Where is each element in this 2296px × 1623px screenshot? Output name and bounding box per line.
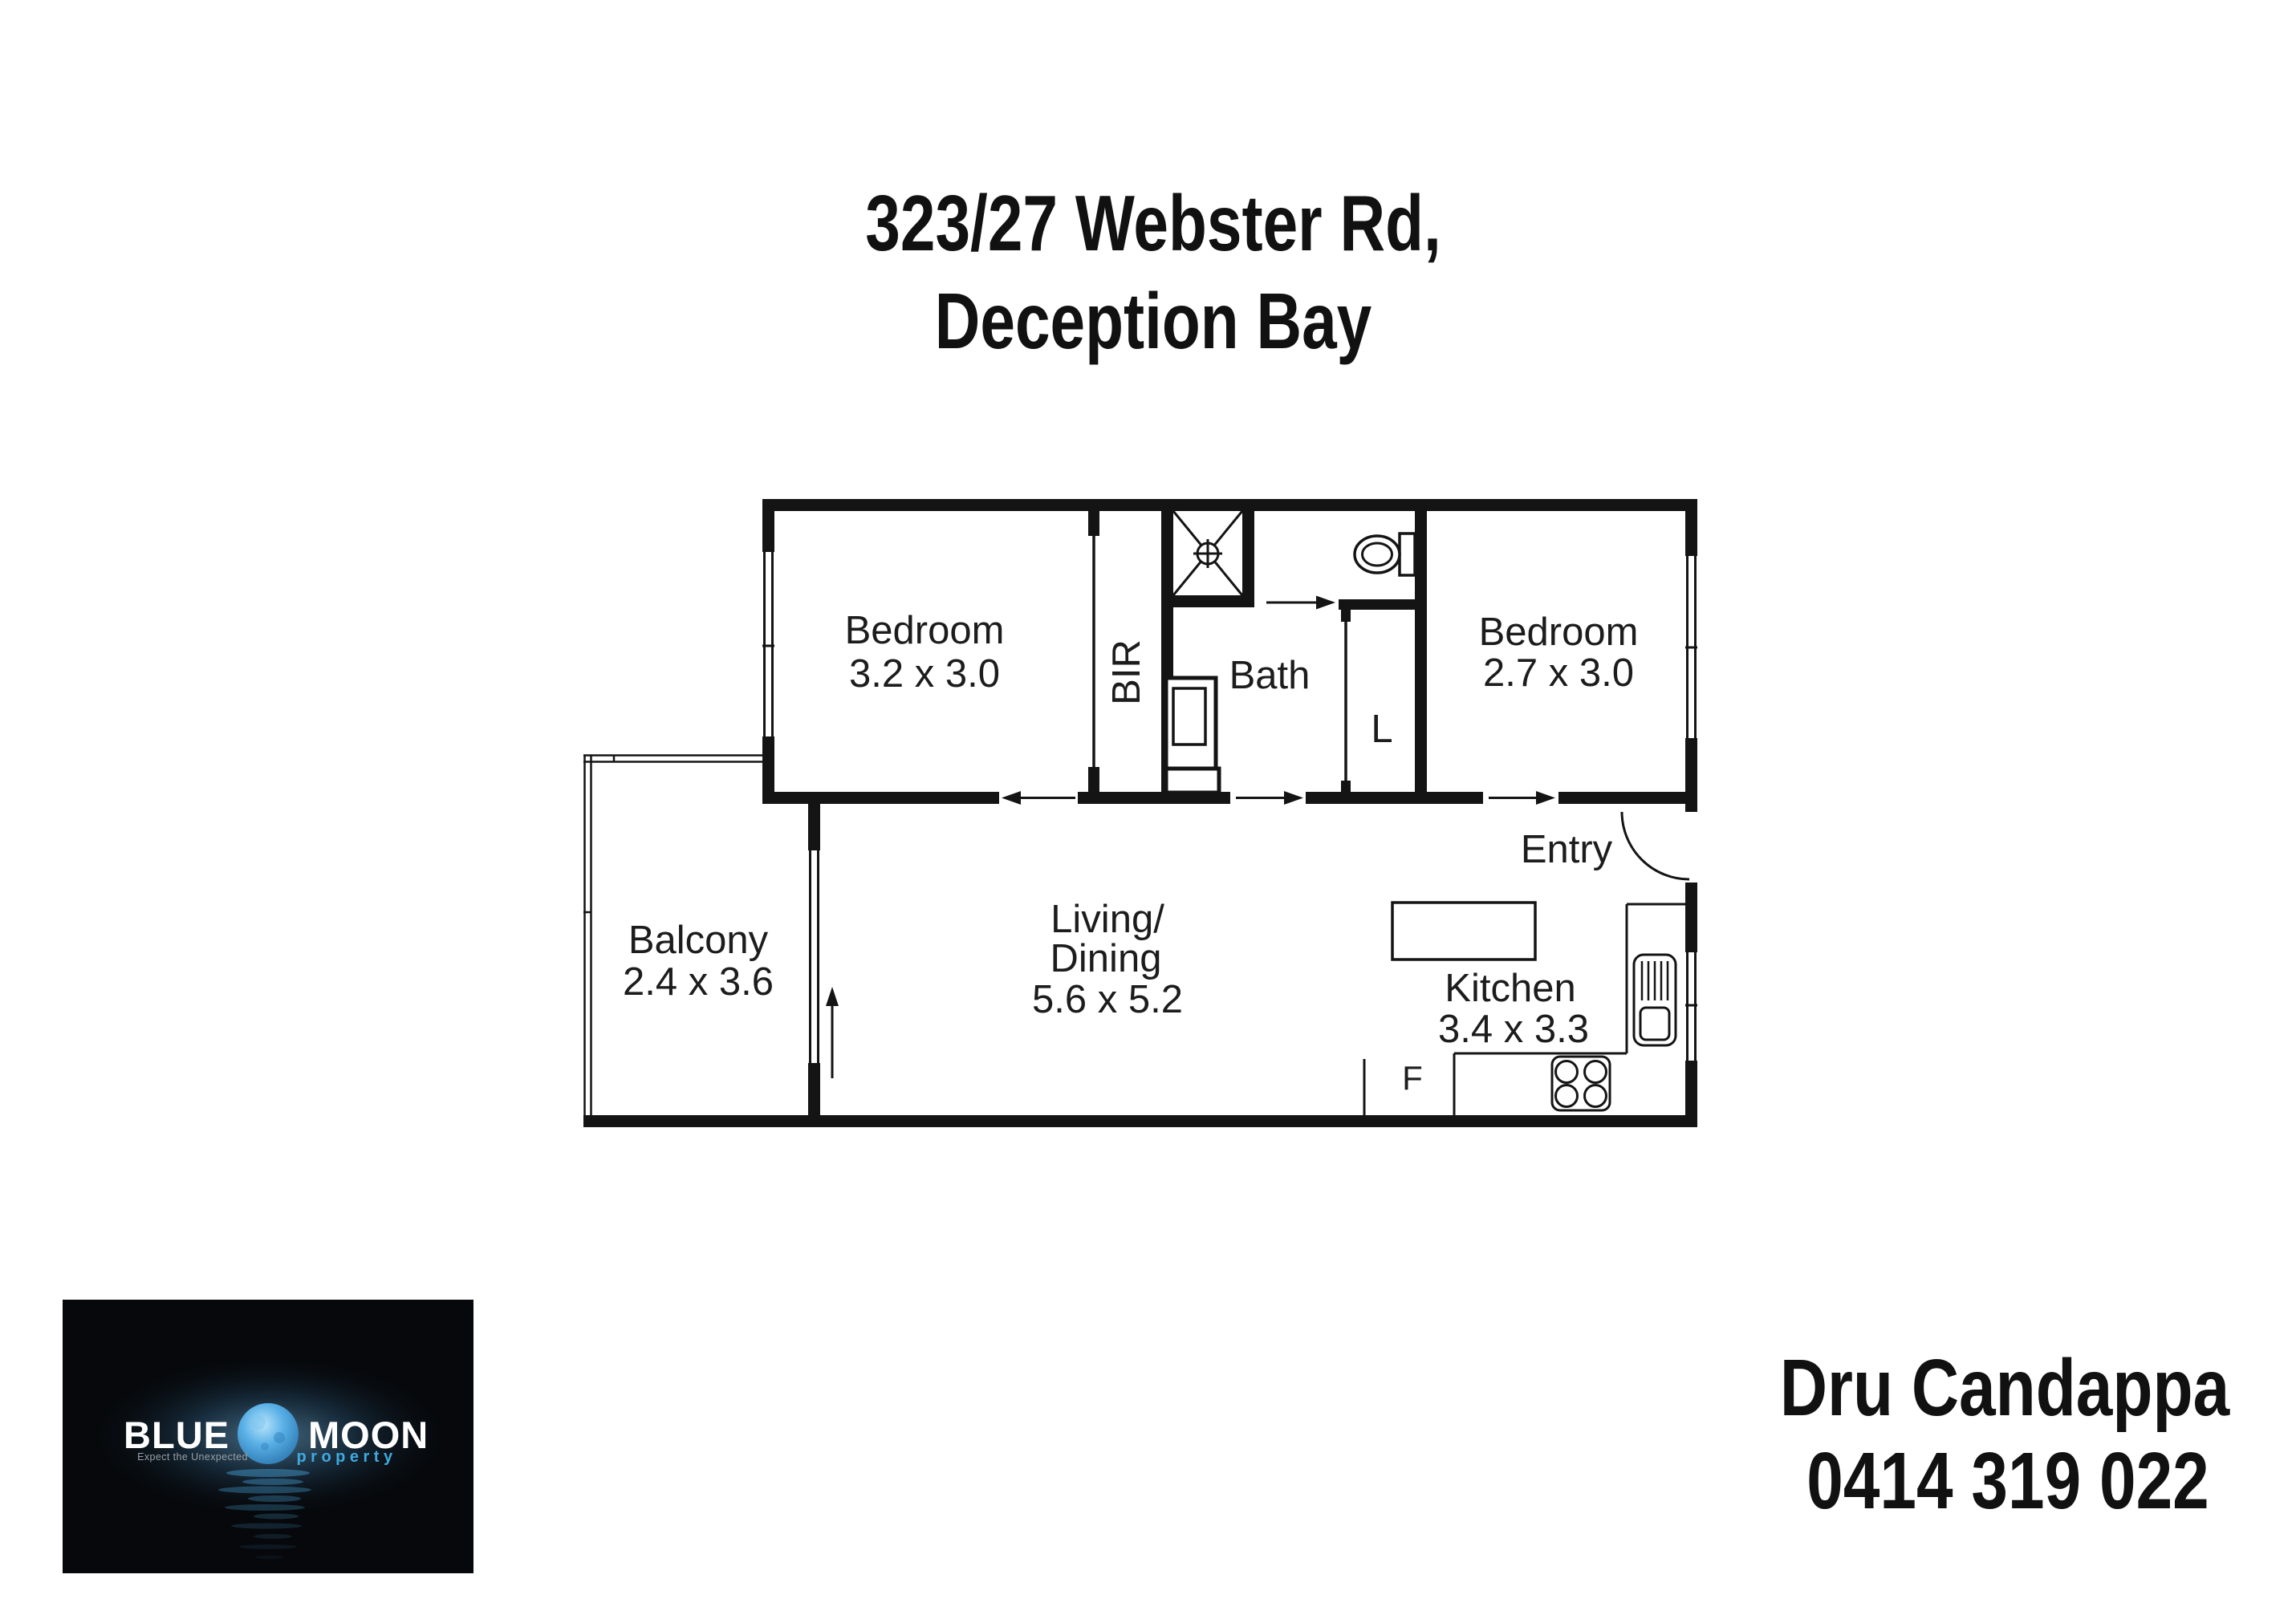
page-title: 323/27 Webster Rd, Deception Bay: [865, 180, 1441, 365]
kitchen-island-bench: [1392, 903, 1535, 960]
blue-moon-logo: BLUE MOON Expect the Unexpected property: [63, 1300, 473, 1573]
wall-balcony-divider-bottom: [808, 1063, 820, 1115]
room-labels: Bedroom 3.2 x 3.0 Bedroom 2.7 x 3.0 Bath…: [623, 609, 1638, 1097]
bedroom1-dims-label: 3.2 x 3.0: [849, 652, 1000, 696]
wall-shower-bottom: [1173, 595, 1254, 607]
title-line-1: 323/27 Webster Rd,: [865, 180, 1441, 267]
wall-balcony-divider-top: [808, 802, 820, 850]
window-bedroom-2: [1685, 556, 1697, 738]
door-arrow-balcony-slider: [826, 987, 839, 1078]
bath-label: Bath: [1229, 654, 1311, 697]
wall-linen-top: [1339, 599, 1418, 610]
bir-label: BIR: [1105, 639, 1148, 705]
logo-brand-blue: BLUE: [124, 1414, 230, 1456]
linen-label: L: [1371, 708, 1392, 751]
shower-fixture: [1173, 511, 1242, 595]
bedroom1-name-label: Bedroom: [845, 609, 1005, 652]
window-bedroom-1: [762, 552, 774, 736]
floorplan-svg: 323/27 Webster Rd, Deception Bay: [0, 0, 2296, 1623]
living-line2-label: Dining: [1050, 937, 1162, 980]
jamb-linen-top: [1341, 610, 1351, 622]
door-arrow-wc: [1266, 596, 1335, 610]
wall-shower-right: [1242, 511, 1254, 607]
wall-top: [762, 499, 1697, 511]
wall-midrow-c: [1306, 792, 1483, 804]
balcony-dims-label: 2.4 x 3.6: [623, 960, 774, 1004]
window-kitchen: [1685, 952, 1697, 1061]
wall-bath-right: [1415, 511, 1427, 804]
fridge-label: F: [1402, 1059, 1423, 1097]
kitchen-name-label: Kitchen: [1445, 967, 1575, 1010]
door-arrow-bath: [1236, 791, 1303, 805]
wall-midrow-d: [1558, 792, 1697, 804]
living-line1-label: Living/: [1050, 898, 1164, 941]
toilet-fixture: [1355, 534, 1415, 575]
agent-phone: 0414 319 022: [1806, 1436, 2209, 1526]
balcony-name-label: Balcony: [628, 919, 769, 962]
bedroom2-name-label: Bedroom: [1479, 611, 1639, 654]
stove-fixture: [1552, 1057, 1610, 1110]
jamb-bir-bottom: [1088, 767, 1099, 792]
wall-left-upper: [762, 499, 774, 552]
logo-tagline: Expect the Unexpected: [137, 1451, 248, 1463]
door-arrow-bedroom-2: [1489, 791, 1555, 805]
wall-midrow-a: [762, 792, 999, 804]
sink-fixture: [1634, 955, 1676, 1045]
entry-door-arc: [1622, 812, 1689, 879]
agent-contact: Dru Candappa 0414 319 022: [1780, 1343, 2230, 1526]
door-arrow-bedroom-1: [1002, 791, 1075, 805]
sliding-door-balcony: [811, 850, 819, 1063]
bedroom2-dims-label: 2.7 x 3.0: [1483, 651, 1634, 695]
wall-bottom: [583, 1115, 1697, 1127]
title-line-2: Deception Bay: [935, 278, 1372, 365]
floorplan-page: 323/27 Webster Rd, Deception Bay: [0, 0, 2296, 1623]
kitchen-dims-label: 3.4 x 3.3: [1438, 1008, 1589, 1051]
agent-name: Dru Candappa: [1780, 1343, 2230, 1433]
wall-right-1: [1685, 499, 1697, 556]
logo-property-wordmark: property: [296, 1448, 396, 1466]
wall-right-3: [1685, 883, 1697, 952]
living-dims-label: 5.6 x 5.2: [1032, 978, 1183, 1021]
entry-label: Entry: [1521, 828, 1613, 871]
jamb-bir-top: [1088, 511, 1099, 536]
vanity-fixture: [1166, 678, 1219, 793]
jamb-linen-bottom: [1341, 781, 1351, 792]
